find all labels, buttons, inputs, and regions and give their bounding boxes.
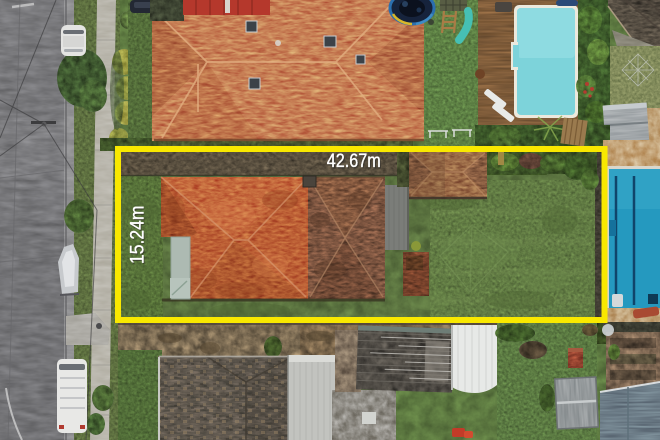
svg-text:15.24m: 15.24m — [127, 206, 148, 265]
svg-text:42.67m: 42.67m — [327, 151, 381, 172]
